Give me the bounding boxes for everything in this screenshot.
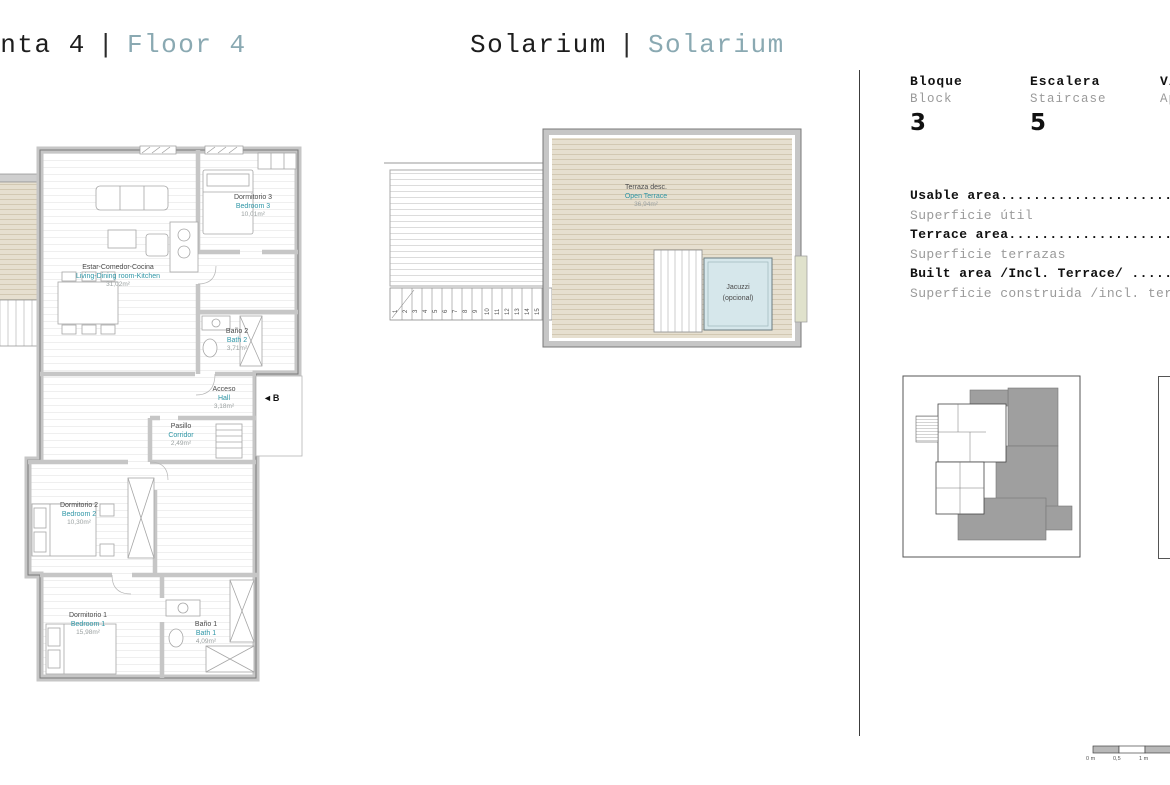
block-label-es: Bloque [910,74,963,89]
terrace-area-row: Terrace area............................ [910,225,1170,245]
built-area-row: Built area /Incl. Terrace/ ............. [910,264,1170,284]
staircase-label-en: Staircase [1030,92,1107,106]
room-name-es: Baño 1 [174,620,238,629]
solarium-title-es: Solarium [470,30,607,60]
solarium-title-en: Solarium [648,30,785,60]
jacuzzi-label: Jacuzzi (opcional) [706,283,770,304]
unit-label-en: Apartment [1160,92,1170,106]
block-info: Bloque Block 3 [910,74,963,136]
unit-info: Vivienda Apartment [1160,74,1170,110]
room-name-en: Bedroom 3 [210,202,296,211]
solarium-title: Solarium|Solarium [470,30,785,60]
room-label-living: Estar-Comedor-Cocina Living-Dining room-… [55,263,181,290]
svg-text:11: 11 [495,308,501,315]
room-area: 10,01m² [210,211,296,219]
floor-title: Planta 4|Floor 4 [0,30,247,60]
svg-text:14: 14 [525,308,531,315]
room-name-en: Bedroom 2 [36,510,122,519]
room-name-en: Bath 1 [174,629,238,638]
room-area: 3,18m² [192,403,256,411]
svg-text:13: 13 [515,308,521,315]
floor4-plan [0,146,302,678]
room-name-en: Bath 2 [205,336,269,345]
room-label-bedroom2: Dormitorio 2 Bedroom 2 10,30m² [36,501,122,528]
terrace-area-row-es: Superficie terrazas [910,245,1170,265]
room-name-es: Dormitorio 2 [36,501,122,510]
room-name-es: Estar-Comedor-Cocina [55,263,181,272]
svg-text:10: 10 [485,308,491,315]
room-area: 3,71m² [205,345,269,353]
scale-one: 1 m [1139,756,1148,762]
floor-title-en: Floor 4 [127,30,247,60]
block-value: 3 [910,110,963,136]
room-name-en: Bedroom 1 [45,620,131,629]
room-area: 36,94m² [600,201,692,209]
block-label-en: Block [910,92,963,106]
room-label-bath1: Baño 1 Bath 1 4,09m² [174,620,238,647]
staircase-info: Escalera Staircase 5 [1030,74,1107,136]
areas-table: Usable area.............................… [910,186,1170,303]
built-area-row-es: Superficie construida /incl. terrazas/ [910,284,1170,304]
room-label-corridor: Pasillo Corridor 2,49m² [152,422,210,449]
scale-zero: 0 m [1086,756,1095,762]
room-area: 31,02m² [55,281,181,289]
title-separator: | [98,30,115,60]
svg-text:15: 15 [535,308,541,315]
room-area: 15,98m² [45,629,131,637]
plans-drawing: 1 2 3 4 5 6 7 8 9 10 11 12 13 14 15 16 [0,0,1170,785]
jacuzzi-optional: (opcional) [706,294,770,305]
jacuzzi-name: Jacuzzi [706,283,770,294]
scale-bar [1093,746,1170,753]
key-plan-secondary [1158,376,1170,559]
scale-half: 0,5 [1113,756,1121,762]
room-label-bedroom1: Dormitorio 1 Bedroom 1 15,98m² [45,611,131,638]
staircase-value: 5 [1030,110,1107,136]
floor-title-es: Planta 4 [0,30,86,60]
room-label-open-terrace: Terraza desc. Open Terrace 36,94m² [600,183,692,210]
room-area: 10,30m² [36,519,122,527]
room-name-en: Hall [192,394,256,403]
room-label-hall: Acceso Hall 3,18m² [192,385,256,412]
room-label-bath2: Baño 2 Bath 2 3,71m² [205,327,269,354]
room-name-es: Pasillo [152,422,210,431]
room-name-en: Corridor [152,431,210,440]
room-label-bedroom3: Dormitorio 3 Bedroom 3 10,01m² [210,193,296,220]
usable-area-row: Usable area............................. [910,186,1170,206]
room-area: 2,49m² [152,440,210,448]
key-plan [903,376,1080,557]
room-name-es: Dormitorio 1 [45,611,131,620]
room-name-en: Living-Dining room-Kitchen [55,272,181,281]
room-name-es: Dormitorio 3 [210,193,296,202]
title-separator: | [619,30,636,60]
svg-text:12: 12 [505,308,511,315]
plan-sheet: { "titles": { "floor": {"es": "Planta 4"… [0,0,1170,785]
solarium-plan: 1 2 3 4 5 6 7 8 9 10 11 12 13 14 15 16 [384,129,807,347]
room-name-es: Terraza desc. [600,183,692,192]
entrance-marker: ◄B [263,393,280,403]
vertical-divider [859,70,860,736]
room-area: 4,09m² [174,638,238,646]
unit-label-es: Vivienda [1160,74,1170,89]
usable-area-row-es: Superficie útil [910,206,1170,226]
room-name-es: Acceso [192,385,256,394]
room-name-en: Open Terrace [600,192,692,201]
room-name-es: Baño 2 [205,327,269,336]
staircase-label-es: Escalera [1030,74,1107,89]
